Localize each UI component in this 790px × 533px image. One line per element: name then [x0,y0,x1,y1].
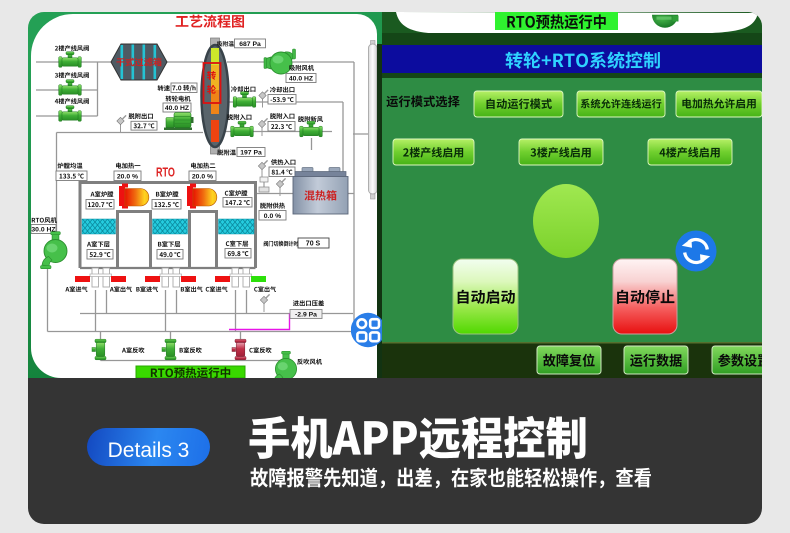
svg-text:20.0 %: 20.0 % [117,174,138,181]
svg-text:-2.9 Pa: -2.9 Pa [295,311,317,318]
svg-text:20.0 %: 20.0 % [192,174,213,181]
svg-text:197 Pa: 197 Pa [240,150,262,157]
svg-text:687 Pa: 687 Pa [239,41,261,48]
svg-text:40.0 HZ: 40.0 HZ [165,105,189,112]
svg-text:70 S: 70 S [306,241,321,248]
svg-text:0.0 %: 0.0 % [264,213,281,220]
svg-text:RTO: RTO [156,166,175,180]
svg-text:40.0 HZ: 40.0 HZ [289,76,313,83]
